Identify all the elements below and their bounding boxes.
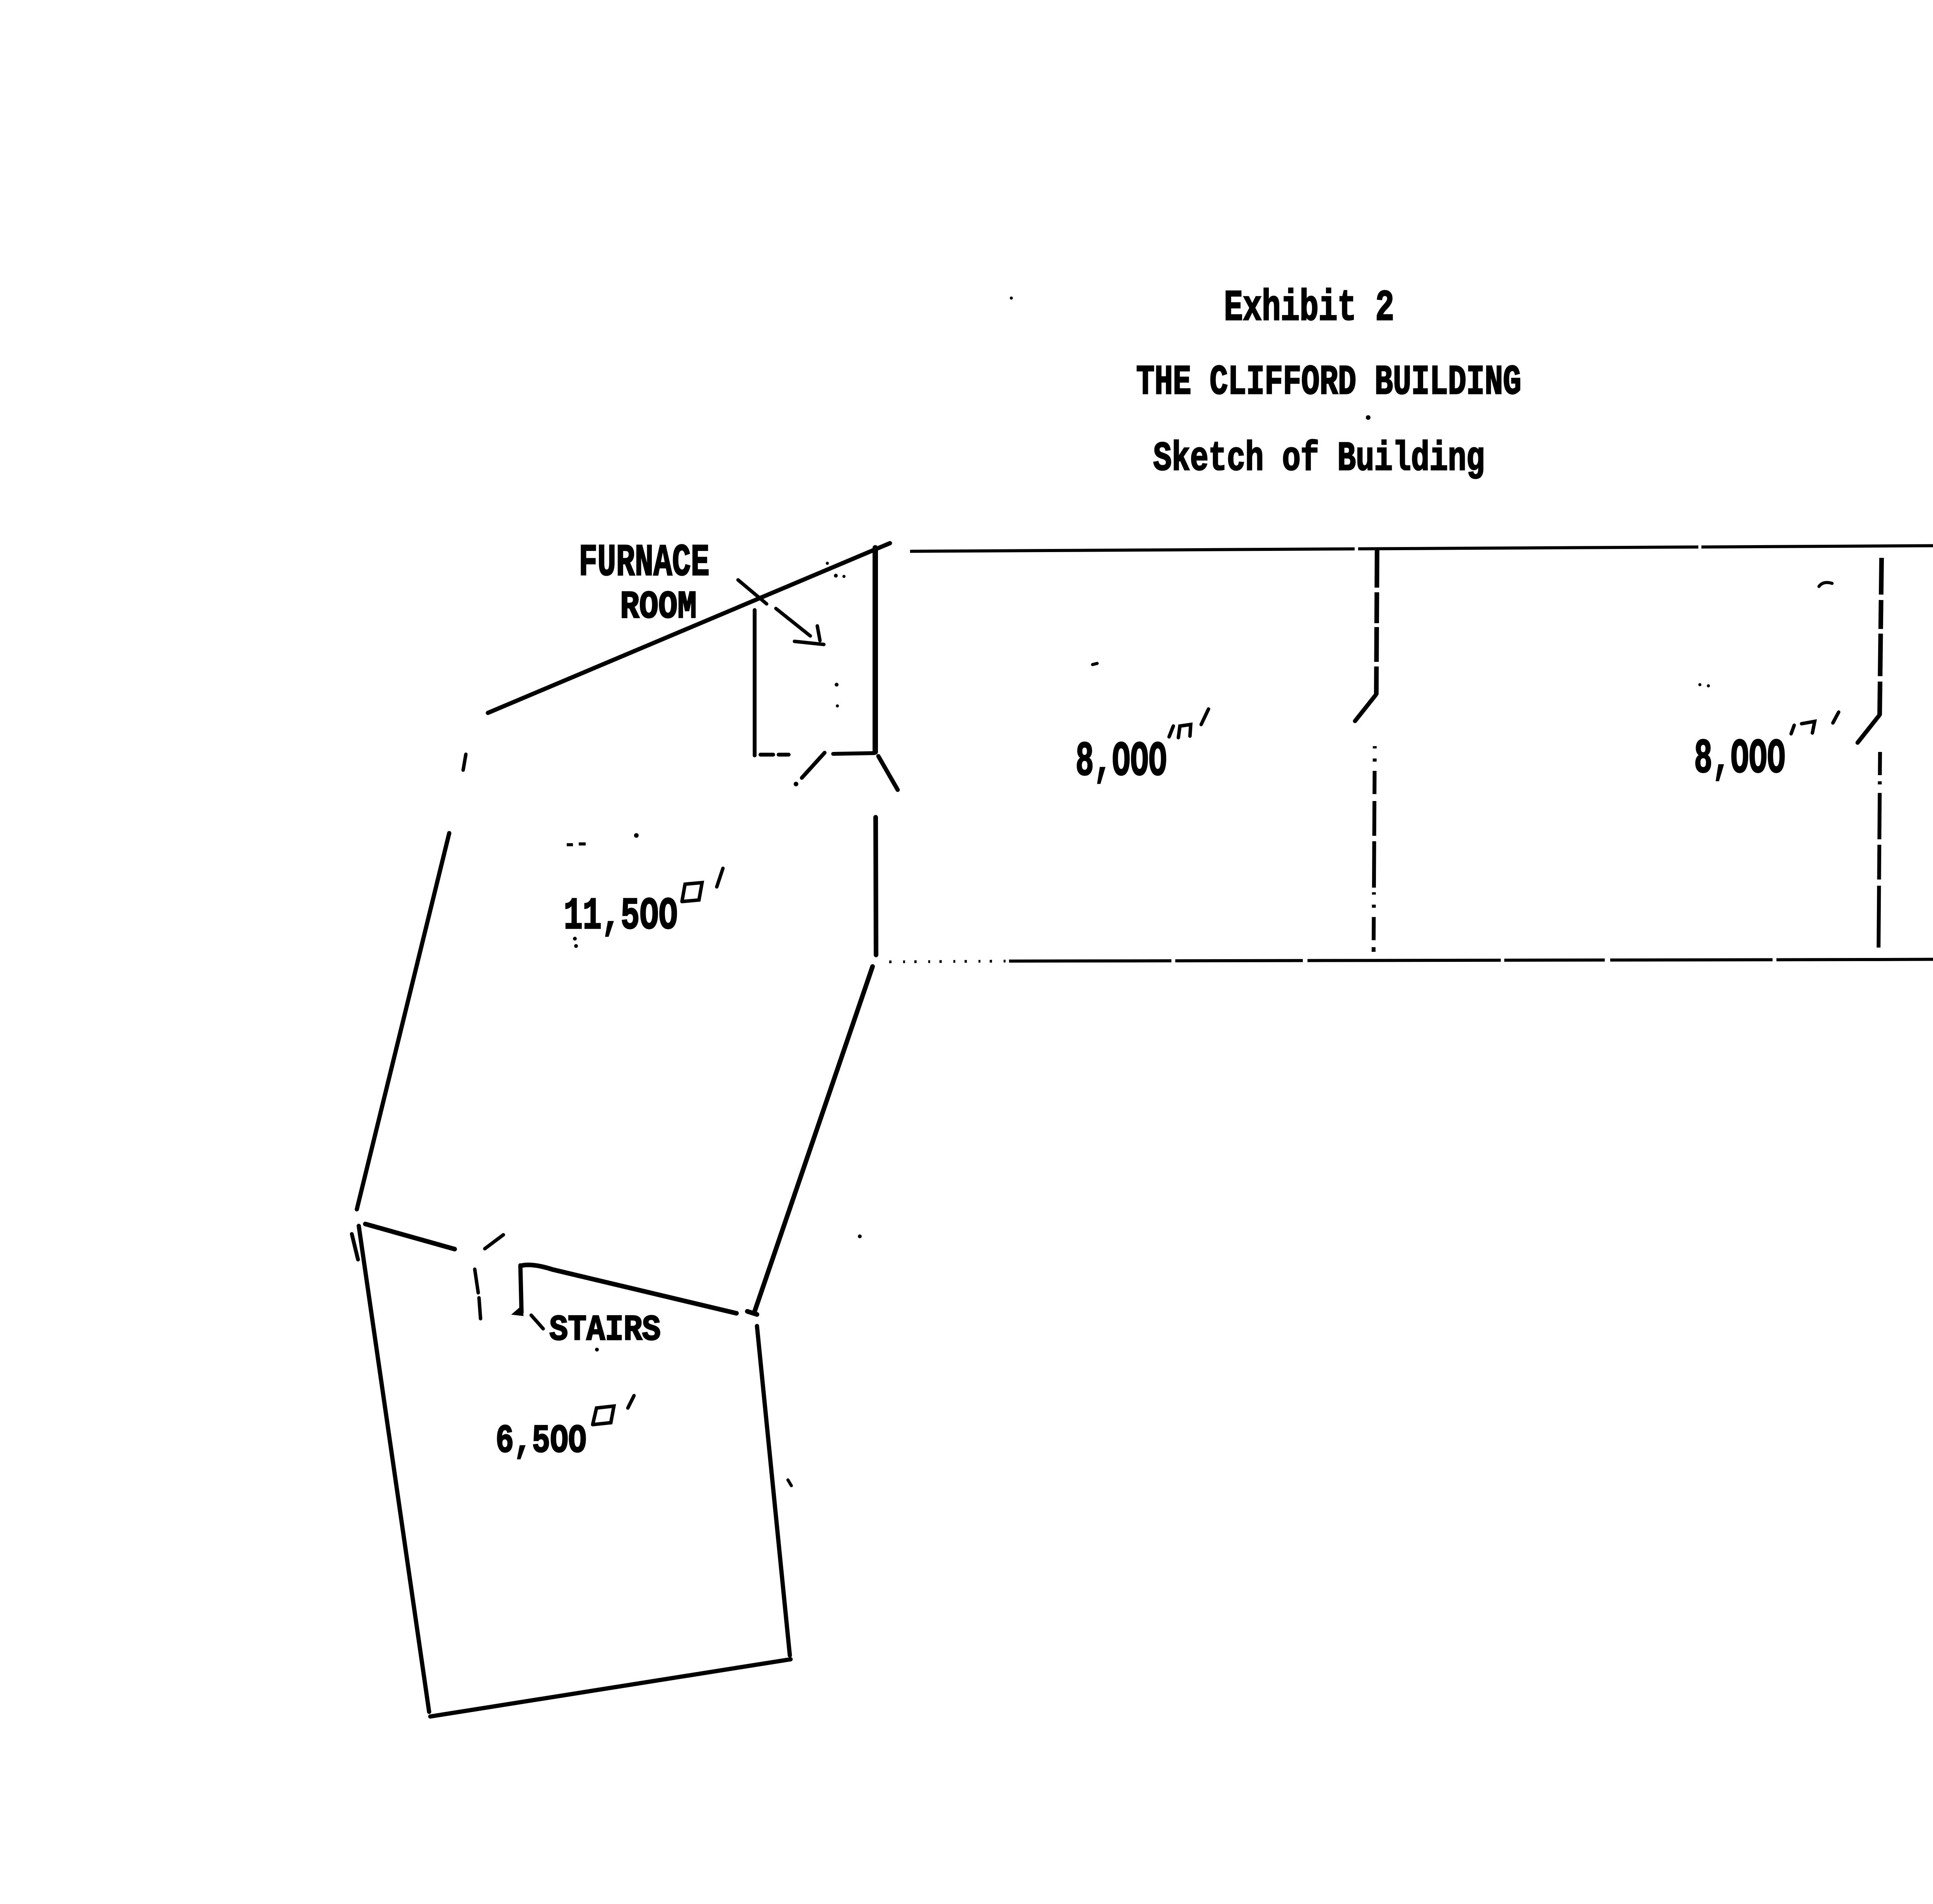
svg-text:Sketch of Building: Sketch of Building	[1153, 436, 1485, 482]
svg-text:ROOM: ROOM	[620, 585, 697, 629]
svg-text:11,5OO: 11,5OO	[564, 891, 678, 942]
svg-text:THE CLIFFORD BUILDING: THE CLIFFORD BUILDING	[1136, 359, 1521, 406]
svg-text:8,OOO: 8,OOO	[1694, 732, 1785, 787]
svg-text:STAIRS: STAIRS	[549, 1310, 661, 1351]
svg-text:FURNACE: FURNACE	[579, 538, 709, 588]
svg-text:Exhibit 2: Exhibit 2	[1224, 284, 1394, 333]
svg-text:6,5OO: 6,5OO	[496, 1419, 586, 1464]
svg-text:8,OOO: 8,OOO	[1076, 735, 1167, 789]
